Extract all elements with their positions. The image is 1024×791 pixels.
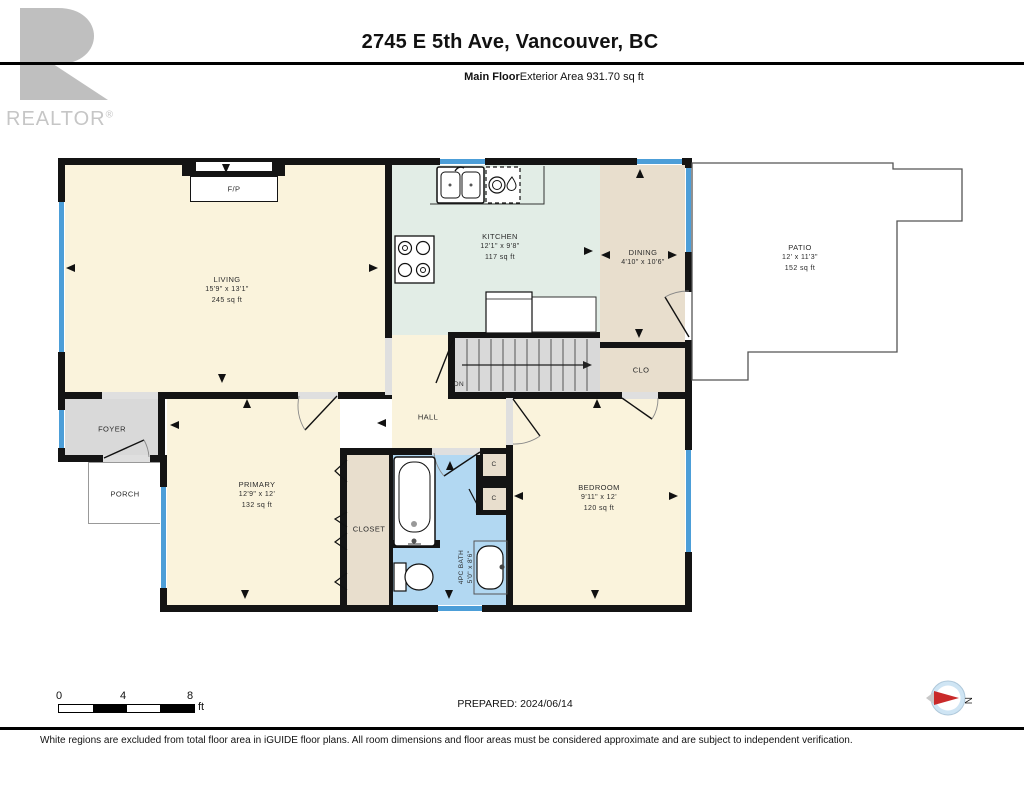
clo-label: CLO	[633, 364, 650, 375]
exterior-area-label: Exterior Area 931.70 sq ft	[520, 71, 644, 83]
dimension-arrow	[791, 166, 799, 175]
compass-north-label: N	[962, 697, 973, 704]
scale-bar	[58, 704, 195, 713]
fireplace-label: F/P	[228, 183, 241, 194]
dimension-arrow	[489, 320, 497, 329]
dimension-arrow	[492, 567, 501, 575]
prepared-date: PREPARED: 2024/06/14	[457, 698, 572, 710]
dimension-arrow	[635, 329, 643, 338]
dimension-arrow	[584, 247, 593, 255]
window	[58, 410, 65, 448]
dimension-arrow	[601, 251, 610, 259]
door-opening	[298, 392, 338, 399]
scale-tick-0: 0	[56, 690, 62, 702]
wall-segment	[58, 158, 692, 165]
door-opening	[506, 398, 513, 445]
dimension-arrow	[241, 590, 249, 599]
scale-tick-4: 4	[120, 690, 126, 702]
window	[685, 450, 692, 552]
dimension-arrow	[66, 264, 75, 272]
window	[440, 158, 485, 165]
scale-tick-8: 8	[187, 690, 193, 702]
dimension-arrow	[243, 399, 251, 408]
wall-segment	[393, 540, 440, 548]
porch-label: PORCH	[110, 488, 139, 499]
foyer-label: FOYER	[98, 423, 126, 434]
registered-mark: ®	[106, 109, 114, 120]
dimension-arrow	[218, 374, 226, 383]
dimension-arrow	[669, 492, 678, 500]
door-opening	[622, 392, 658, 399]
window	[438, 605, 482, 612]
dimension-arrow	[593, 399, 601, 408]
dimension-arrow	[695, 251, 704, 259]
hall-label: HALL	[418, 411, 438, 422]
dimension-arrow	[369, 264, 378, 272]
bath-label: 4PC BATH 5'0" x 8'6"	[457, 550, 475, 585]
window	[160, 487, 167, 588]
door-opening	[103, 455, 150, 462]
footer-divider	[0, 727, 1024, 730]
page-title: 2745 E 5th Ave, Vancouver, BC	[362, 31, 659, 54]
disclaimer-text: White regions are excluded from total fl…	[40, 735, 853, 746]
dimension-arrow	[170, 421, 179, 429]
closet-c1-label: C	[491, 460, 496, 470]
dimension-arrow	[514, 492, 523, 500]
dimension-arrow	[636, 169, 644, 178]
patio-label: PATIO 12' x 11'3" 152 sq ft	[782, 242, 818, 274]
floor-subtitle: Main FloorExterior Area 931.70 sq ft	[464, 71, 644, 83]
door-opening	[685, 292, 692, 340]
floorplan-page: REALTOR® 2745 E 5th Ave, Vancouver, BC M…	[0, 0, 1024, 791]
wall-segment	[340, 448, 347, 605]
room-hall-upper	[392, 335, 448, 399]
stairs-dn-label: DN	[454, 380, 464, 390]
dimension-arrow	[791, 339, 799, 348]
closet-c2-label: C	[491, 494, 496, 504]
scale-unit: ft	[198, 701, 204, 713]
window	[637, 158, 682, 165]
header-divider	[0, 62, 1024, 65]
patio-outline	[692, 163, 962, 380]
dimension-arrow	[491, 166, 499, 175]
wall-segment	[389, 455, 393, 605]
window	[58, 202, 65, 352]
dimension-arrow	[446, 461, 454, 470]
floor-label: Main Floor	[464, 71, 520, 83]
wall-segment	[158, 392, 165, 462]
fireplace-recess	[196, 162, 272, 171]
dining-label: DINING 4'10" x 10'6"	[621, 247, 665, 269]
wall-segment	[478, 478, 508, 486]
dimension-arrow	[668, 251, 677, 259]
compass-icon: N	[926, 681, 973, 715]
primary-label: PRIMARY 12'9" x 12' 132 sq ft	[239, 479, 276, 511]
dimension-arrow	[445, 590, 453, 599]
bedroom-label: BEDROOM 9'11" x 12' 120 sq ft	[578, 482, 620, 514]
wall-segment	[600, 342, 685, 348]
closet-label: CLOSET	[353, 523, 385, 534]
dimension-arrow	[396, 567, 405, 575]
room-stairs	[455, 338, 600, 392]
dimension-arrow	[222, 164, 230, 173]
dimension-arrow	[878, 251, 887, 259]
realtor-logo-text: REALTOR®	[6, 108, 114, 131]
wall-segment	[160, 605, 692, 612]
room-hall	[392, 399, 506, 448]
window	[685, 168, 692, 252]
door-opening	[432, 448, 480, 455]
dimension-arrow	[377, 419, 386, 427]
living-label: LIVING 15'9" x 13'1" 245 sq ft	[205, 274, 249, 306]
kitchen-label: KITCHEN 12'1" x 9'8" 117 sq ft	[480, 231, 519, 263]
door-opening	[102, 392, 158, 399]
dimension-arrow	[591, 590, 599, 599]
door-opening	[385, 338, 392, 395]
wall-segment	[448, 332, 600, 338]
realtor-logo	[20, 8, 112, 100]
